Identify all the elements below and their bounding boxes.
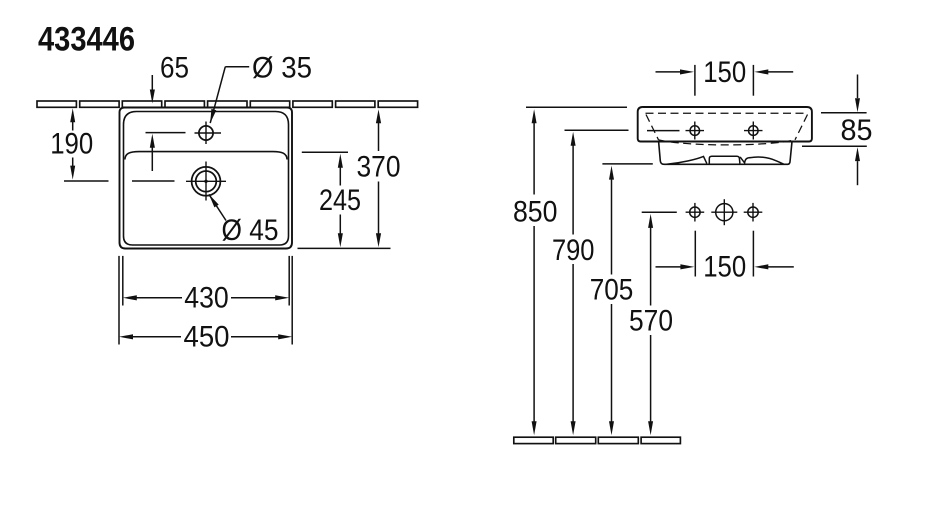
svg-text:150: 150 <box>703 56 746 89</box>
svg-text:150: 150 <box>703 250 746 283</box>
svg-text:850: 850 <box>513 196 558 229</box>
svg-text:85: 85 <box>841 114 873 147</box>
svg-text:430: 430 <box>184 281 229 314</box>
svg-text:433446: 433446 <box>38 21 135 59</box>
svg-text:Ø 35: Ø 35 <box>252 51 312 84</box>
svg-text:Ø 45: Ø 45 <box>222 214 279 247</box>
svg-text:450: 450 <box>184 320 230 353</box>
svg-text:245: 245 <box>319 184 361 217</box>
svg-text:790: 790 <box>552 234 595 267</box>
svg-text:65: 65 <box>160 51 189 84</box>
svg-text:370: 370 <box>357 150 401 183</box>
svg-text:190: 190 <box>50 127 93 160</box>
svg-text:570: 570 <box>629 305 673 338</box>
svg-text:705: 705 <box>590 274 634 307</box>
